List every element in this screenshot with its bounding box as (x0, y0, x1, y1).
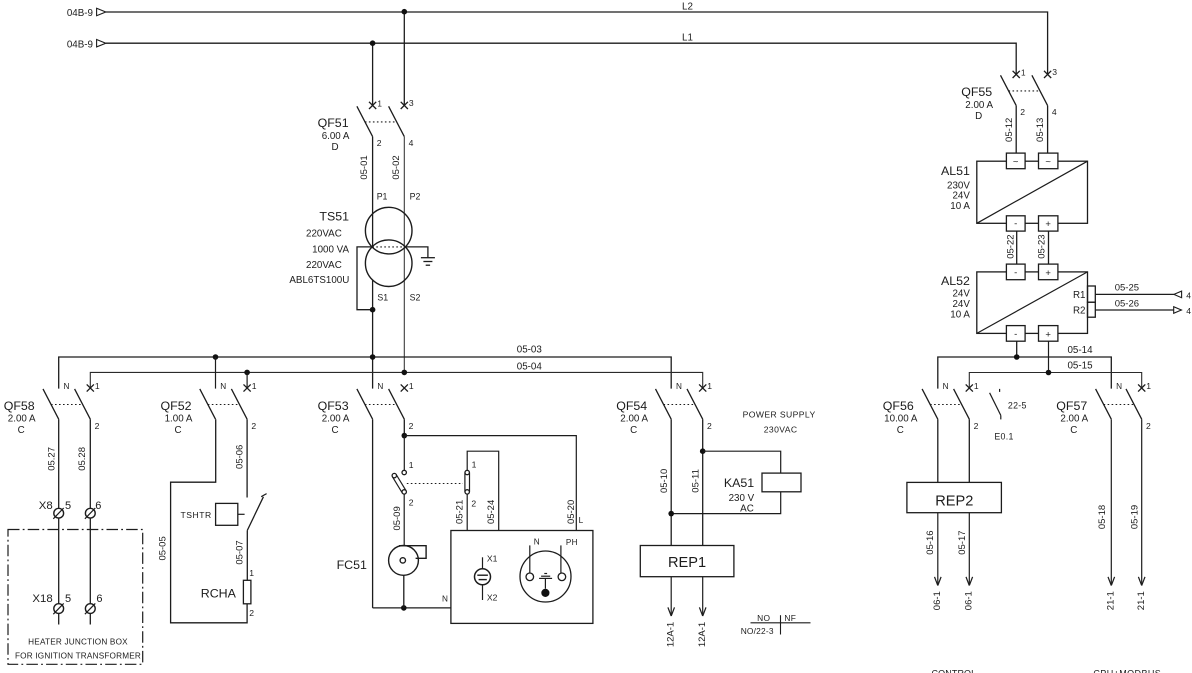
svg-text:1: 1 (249, 568, 254, 578)
svg-text:05-16: 05-16 (925, 530, 936, 554)
svg-text:1: 1 (409, 381, 414, 391)
svg-text:C: C (332, 425, 339, 436)
svg-text:05-04: 05-04 (517, 361, 543, 372)
svg-text:10.00 A: 10.00 A (884, 414, 918, 425)
svg-text:2.00 A: 2.00 A (965, 100, 993, 111)
svg-text:AL52: AL52 (941, 274, 970, 288)
svg-text:N: N (220, 382, 226, 391)
svg-text:1: 1 (707, 381, 712, 391)
svg-text:P2: P2 (410, 192, 421, 202)
svg-text:5: 5 (65, 593, 71, 605)
svg-text:05-19: 05-19 (1130, 505, 1141, 529)
svg-text:05-23: 05-23 (1037, 234, 1048, 258)
svg-text:4: 4 (1186, 306, 1191, 316)
svg-text:2.00 A: 2.00 A (620, 414, 648, 425)
svg-text:3: 3 (1052, 67, 1057, 77)
svg-text:C: C (174, 425, 181, 436)
svg-text:L2: L2 (682, 1, 693, 12)
svg-text:220VAC: 220VAC (306, 260, 342, 271)
svg-text:05-14: 05-14 (1067, 345, 1093, 356)
svg-text:TSHTR: TSHTR (181, 510, 212, 520)
svg-text:24V: 24V (952, 191, 970, 202)
svg-text:05-07: 05-07 (235, 540, 246, 564)
svg-text:1: 1 (1021, 68, 1026, 77)
svg-text:4: 4 (409, 138, 414, 148)
svg-text:10 A: 10 A (950, 309, 970, 320)
svg-text:ABL6TS100U: ABL6TS100U (289, 275, 349, 286)
svg-text:2: 2 (251, 421, 256, 431)
svg-text:6: 6 (95, 500, 101, 512)
svg-text:-: - (1014, 329, 1017, 340)
svg-text:AC: AC (740, 504, 754, 515)
svg-text:HEATER JUNCTION BOX: HEATER JUNCTION BOX (28, 637, 128, 646)
svg-text:~: ~ (1045, 157, 1051, 168)
svg-text:05.27: 05.27 (47, 447, 58, 471)
svg-text:X1: X1 (487, 554, 498, 564)
svg-text:05-11: 05-11 (691, 469, 702, 493)
svg-text:L: L (579, 516, 584, 525)
svg-text:05-25: 05-25 (1115, 283, 1139, 294)
svg-text:24V: 24V (952, 299, 970, 310)
svg-text:04B-9: 04B-9 (67, 40, 93, 51)
svg-text:2: 2 (409, 497, 414, 507)
svg-text:1: 1 (1146, 381, 1151, 391)
svg-text:05-18: 05-18 (1097, 505, 1108, 529)
svg-text:2.00 A: 2.00 A (8, 414, 36, 425)
svg-text:-: - (1014, 219, 1017, 230)
svg-text:1: 1 (409, 460, 414, 470)
svg-text:230 V: 230 V (729, 493, 755, 504)
svg-text:N: N (943, 382, 949, 391)
svg-text:220VAC: 220VAC (306, 229, 342, 240)
svg-text:REP1: REP1 (668, 555, 706, 571)
svg-text:N: N (442, 594, 448, 603)
svg-text:05-12: 05-12 (1004, 118, 1015, 142)
svg-text:S2: S2 (410, 293, 421, 303)
svg-text:AL51: AL51 (941, 164, 970, 178)
svg-text:NF: NF (784, 613, 796, 623)
svg-text:05-01: 05-01 (359, 155, 370, 179)
svg-text:05-09: 05-09 (392, 506, 403, 530)
svg-text:4: 4 (1052, 107, 1057, 117)
svg-text:C: C (1070, 425, 1077, 436)
svg-text:12A-1: 12A-1 (666, 622, 677, 647)
svg-text:05-20: 05-20 (566, 500, 577, 524)
svg-text:3: 3 (409, 98, 414, 108)
svg-text:5: 5 (65, 500, 71, 512)
svg-text:X2: X2 (487, 593, 498, 603)
svg-text:1000 VA: 1000 VA (312, 245, 349, 256)
svg-text:NO/22-3: NO/22-3 (741, 626, 774, 636)
svg-text:CONTROL: CONTROL (932, 668, 977, 673)
svg-text:10 A: 10 A (950, 201, 970, 212)
svg-text:N: N (676, 382, 682, 391)
svg-text:PH: PH (566, 538, 578, 547)
svg-text:FC51: FC51 (337, 558, 367, 572)
svg-text:D: D (332, 142, 339, 153)
svg-text:06-1: 06-1 (963, 591, 974, 610)
svg-text:2: 2 (249, 608, 254, 618)
svg-text:05-05: 05-05 (158, 536, 169, 560)
svg-text:2: 2 (974, 421, 979, 431)
svg-text:E0.1: E0.1 (994, 431, 1013, 441)
svg-text:05-26: 05-26 (1115, 298, 1139, 309)
svg-text:2: 2 (377, 138, 382, 148)
svg-text:1.00 A: 1.00 A (165, 414, 193, 425)
svg-text:QF51: QF51 (318, 116, 349, 130)
svg-text:R1: R1 (1073, 290, 1086, 301)
svg-text:KA51: KA51 (724, 476, 754, 490)
svg-text:NO: NO (757, 613, 770, 623)
svg-text:R2: R2 (1073, 306, 1086, 317)
svg-text:QF53: QF53 (318, 399, 349, 413)
svg-text:QF54: QF54 (616, 399, 647, 413)
svg-text:05-22: 05-22 (1005, 234, 1016, 258)
svg-text:QF58: QF58 (4, 399, 35, 413)
svg-text:N: N (377, 382, 383, 391)
svg-text:05-02: 05-02 (391, 155, 402, 179)
svg-text:230VAC: 230VAC (764, 425, 798, 435)
svg-text:05-21: 05-21 (454, 500, 465, 524)
svg-text:05-17: 05-17 (957, 530, 968, 554)
svg-text:1: 1 (377, 99, 382, 108)
svg-text:+: + (1045, 329, 1051, 340)
svg-text:05-15: 05-15 (1067, 360, 1093, 371)
svg-text:S1: S1 (377, 293, 388, 303)
svg-text:C: C (18, 425, 25, 436)
svg-text:D: D (975, 111, 982, 122)
svg-text:QF56: QF56 (883, 399, 914, 413)
svg-text:6: 6 (96, 593, 102, 605)
svg-text:2: 2 (95, 421, 100, 431)
svg-text:2: 2 (409, 421, 414, 431)
svg-text:X8: X8 (39, 500, 53, 512)
svg-text:05-03: 05-03 (517, 344, 543, 355)
svg-text:C: C (897, 425, 904, 436)
svg-text:C: C (630, 425, 637, 436)
svg-text:REP2: REP2 (935, 493, 973, 509)
svg-text:2: 2 (1146, 421, 1151, 431)
svg-text:2: 2 (707, 421, 712, 431)
svg-text:05-24: 05-24 (486, 500, 497, 524)
svg-text:2: 2 (1020, 107, 1025, 117)
svg-text:QF55: QF55 (961, 85, 992, 99)
svg-text:4: 4 (1186, 290, 1191, 300)
svg-text:6.00 A: 6.00 A (322, 131, 350, 142)
svg-text:+: + (1045, 219, 1051, 230)
svg-text:1: 1 (95, 381, 100, 391)
svg-text:2: 2 (471, 498, 476, 508)
svg-text:12A-1: 12A-1 (697, 622, 708, 647)
svg-text:N: N (534, 538, 540, 547)
svg-text:FOR IGNITION TRANSFORMER: FOR IGNITION TRANSFORMER (15, 652, 141, 661)
svg-text:1: 1 (974, 381, 979, 391)
svg-text:TS51: TS51 (319, 209, 349, 223)
svg-text:2.00 A: 2.00 A (322, 414, 350, 425)
svg-text:~: ~ (1013, 157, 1019, 168)
svg-text:L1: L1 (682, 33, 693, 44)
svg-text:N: N (64, 382, 70, 391)
svg-text:21-1: 21-1 (1136, 591, 1147, 610)
svg-text:05-10: 05-10 (659, 469, 670, 493)
svg-text:05-13: 05-13 (1035, 118, 1046, 142)
svg-text:CPU+MODBUS: CPU+MODBUS (1093, 668, 1161, 673)
svg-text:-: - (1014, 268, 1017, 279)
svg-text:04B-9: 04B-9 (67, 8, 93, 19)
svg-text:05.28: 05.28 (77, 447, 88, 471)
svg-text:N: N (1116, 382, 1122, 391)
svg-text:21-1: 21-1 (1105, 591, 1116, 610)
svg-text:P1: P1 (377, 192, 388, 202)
svg-text:06-1: 06-1 (932, 591, 943, 610)
svg-text:1: 1 (472, 459, 477, 469)
svg-text:QF52: QF52 (161, 399, 192, 413)
svg-text:RCHA: RCHA (201, 586, 237, 600)
svg-text:22-5: 22-5 (1008, 400, 1027, 410)
svg-text:2.00 A: 2.00 A (1060, 414, 1088, 425)
svg-text:POWER SUPPLY: POWER SUPPLY (743, 409, 816, 419)
svg-text:X18: X18 (32, 593, 52, 605)
svg-text:05-06: 05-06 (235, 445, 246, 469)
svg-text:+: + (1045, 268, 1051, 279)
svg-text:1: 1 (252, 381, 257, 391)
svg-text:QF57: QF57 (1056, 399, 1087, 413)
